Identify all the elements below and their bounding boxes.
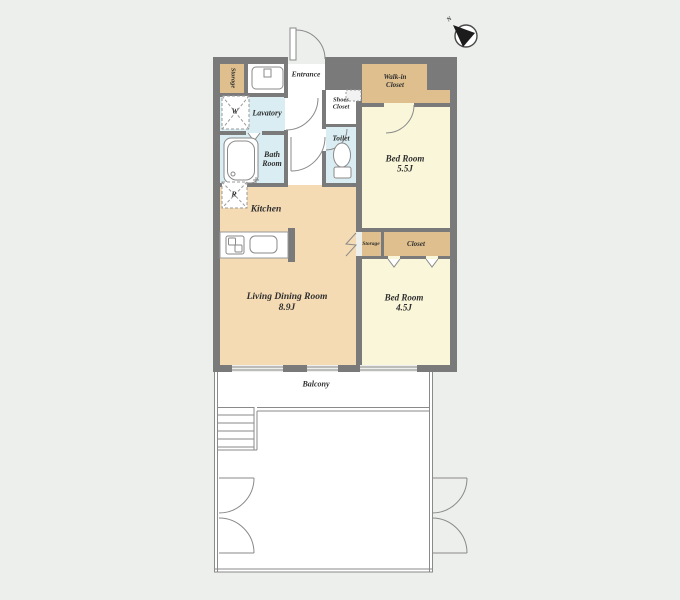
room-label-bath-room: Bath Room xyxy=(262,150,282,168)
shoes-closet-line1: Shoes xyxy=(333,97,350,104)
entrance-door-arc xyxy=(296,30,325,59)
bedroom-4-5-area: 4.5J xyxy=(385,303,424,313)
room-label-mid-storage: Storage xyxy=(362,241,379,247)
room-label-closet: Closet xyxy=(407,240,425,248)
floor-plan-drawing xyxy=(0,0,680,600)
bath-room-line1: Bath xyxy=(262,150,282,159)
room-label-walk-in-closet: Walk-in Closet xyxy=(384,73,407,89)
living-dining-name: Living Dining Room xyxy=(247,292,328,303)
room-label-shoes-closet: Shoes Closet xyxy=(333,97,350,112)
walk-in-closet-line1: Walk-in xyxy=(384,73,407,81)
kitchen-counter xyxy=(220,232,288,258)
windows xyxy=(232,367,417,370)
room-label-entrance: Entrance xyxy=(292,71,321,80)
room-label-bedroom-5-5: Bed Room 5.5J xyxy=(386,154,425,175)
room-label-balcony: Balcony xyxy=(302,379,329,388)
balcony-area xyxy=(214,372,432,572)
bedroom-5-5-name: Bed Room xyxy=(386,154,425,164)
room-label-lavatory: Lavatory xyxy=(252,108,281,117)
compass-icon xyxy=(453,25,477,47)
washer-marker-label: W xyxy=(232,108,239,117)
bathtub-icon xyxy=(224,138,259,183)
bath-room-line2: Room xyxy=(262,159,282,168)
room-label-entry-storage: Storage xyxy=(229,68,236,89)
bedroom-4-5-name: Bed Room xyxy=(385,293,424,303)
wash-basin-icon xyxy=(252,67,283,89)
shoes-closet-line2: Closet xyxy=(333,104,350,111)
sink-icon xyxy=(250,236,277,253)
room-label-kitchen: Kitchen xyxy=(251,205,282,216)
room-label-bedroom-4-5: Bed Room 4.5J xyxy=(385,293,424,314)
fridge-marker-label: R xyxy=(231,191,236,200)
living-dining-area: 8.9J xyxy=(247,303,328,314)
bedroom-5-5-area: 5.5J xyxy=(386,164,425,174)
room-label-toilet: Toilet xyxy=(332,135,349,144)
walk-in-closet-line2: Closet xyxy=(384,81,407,89)
floor-plan-canvas: Entrance Storage Lavatory Shoes Closet T… xyxy=(0,0,680,600)
room-label-living-dining: Living Dining Room 8.9J xyxy=(247,292,328,314)
toilet-icon xyxy=(334,143,352,178)
entrance-door-leaf xyxy=(290,28,296,60)
